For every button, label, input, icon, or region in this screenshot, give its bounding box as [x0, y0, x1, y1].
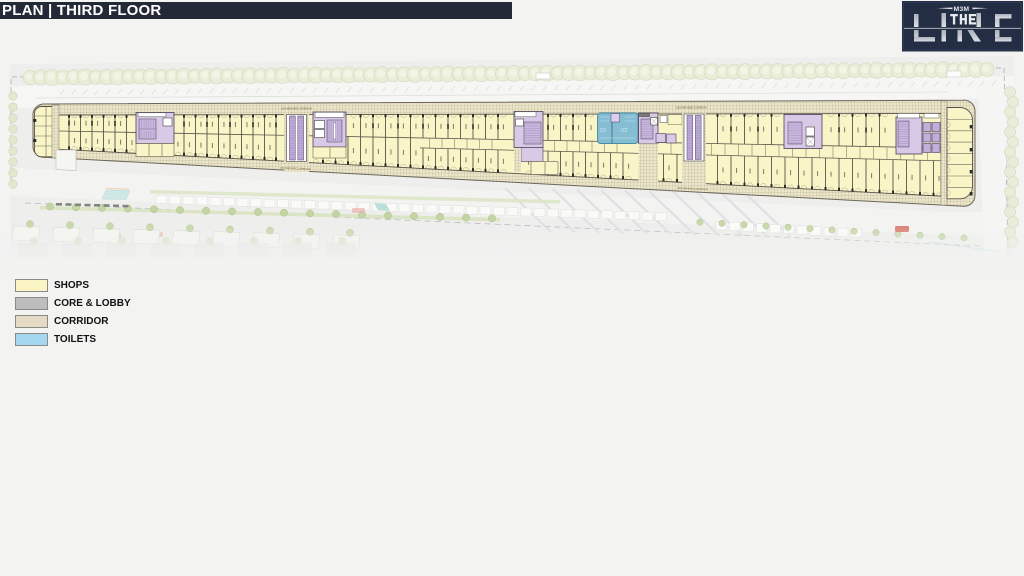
svg-text:3200 MM WIDE CORRIDOR: 3200 MM WIDE CORRIDOR — [281, 107, 312, 110]
svg-text:M3M: M3M — [954, 6, 970, 13]
svg-text:LADIES: LADIES — [621, 128, 629, 131]
svg-text:3200 MM WIDE CORRIDOR: 3200 MM WIDE CORRIDOR — [676, 106, 707, 109]
svg-text:TOILET: TOILET — [621, 131, 629, 133]
svg-text:TOILET: TOILET — [600, 131, 608, 133]
